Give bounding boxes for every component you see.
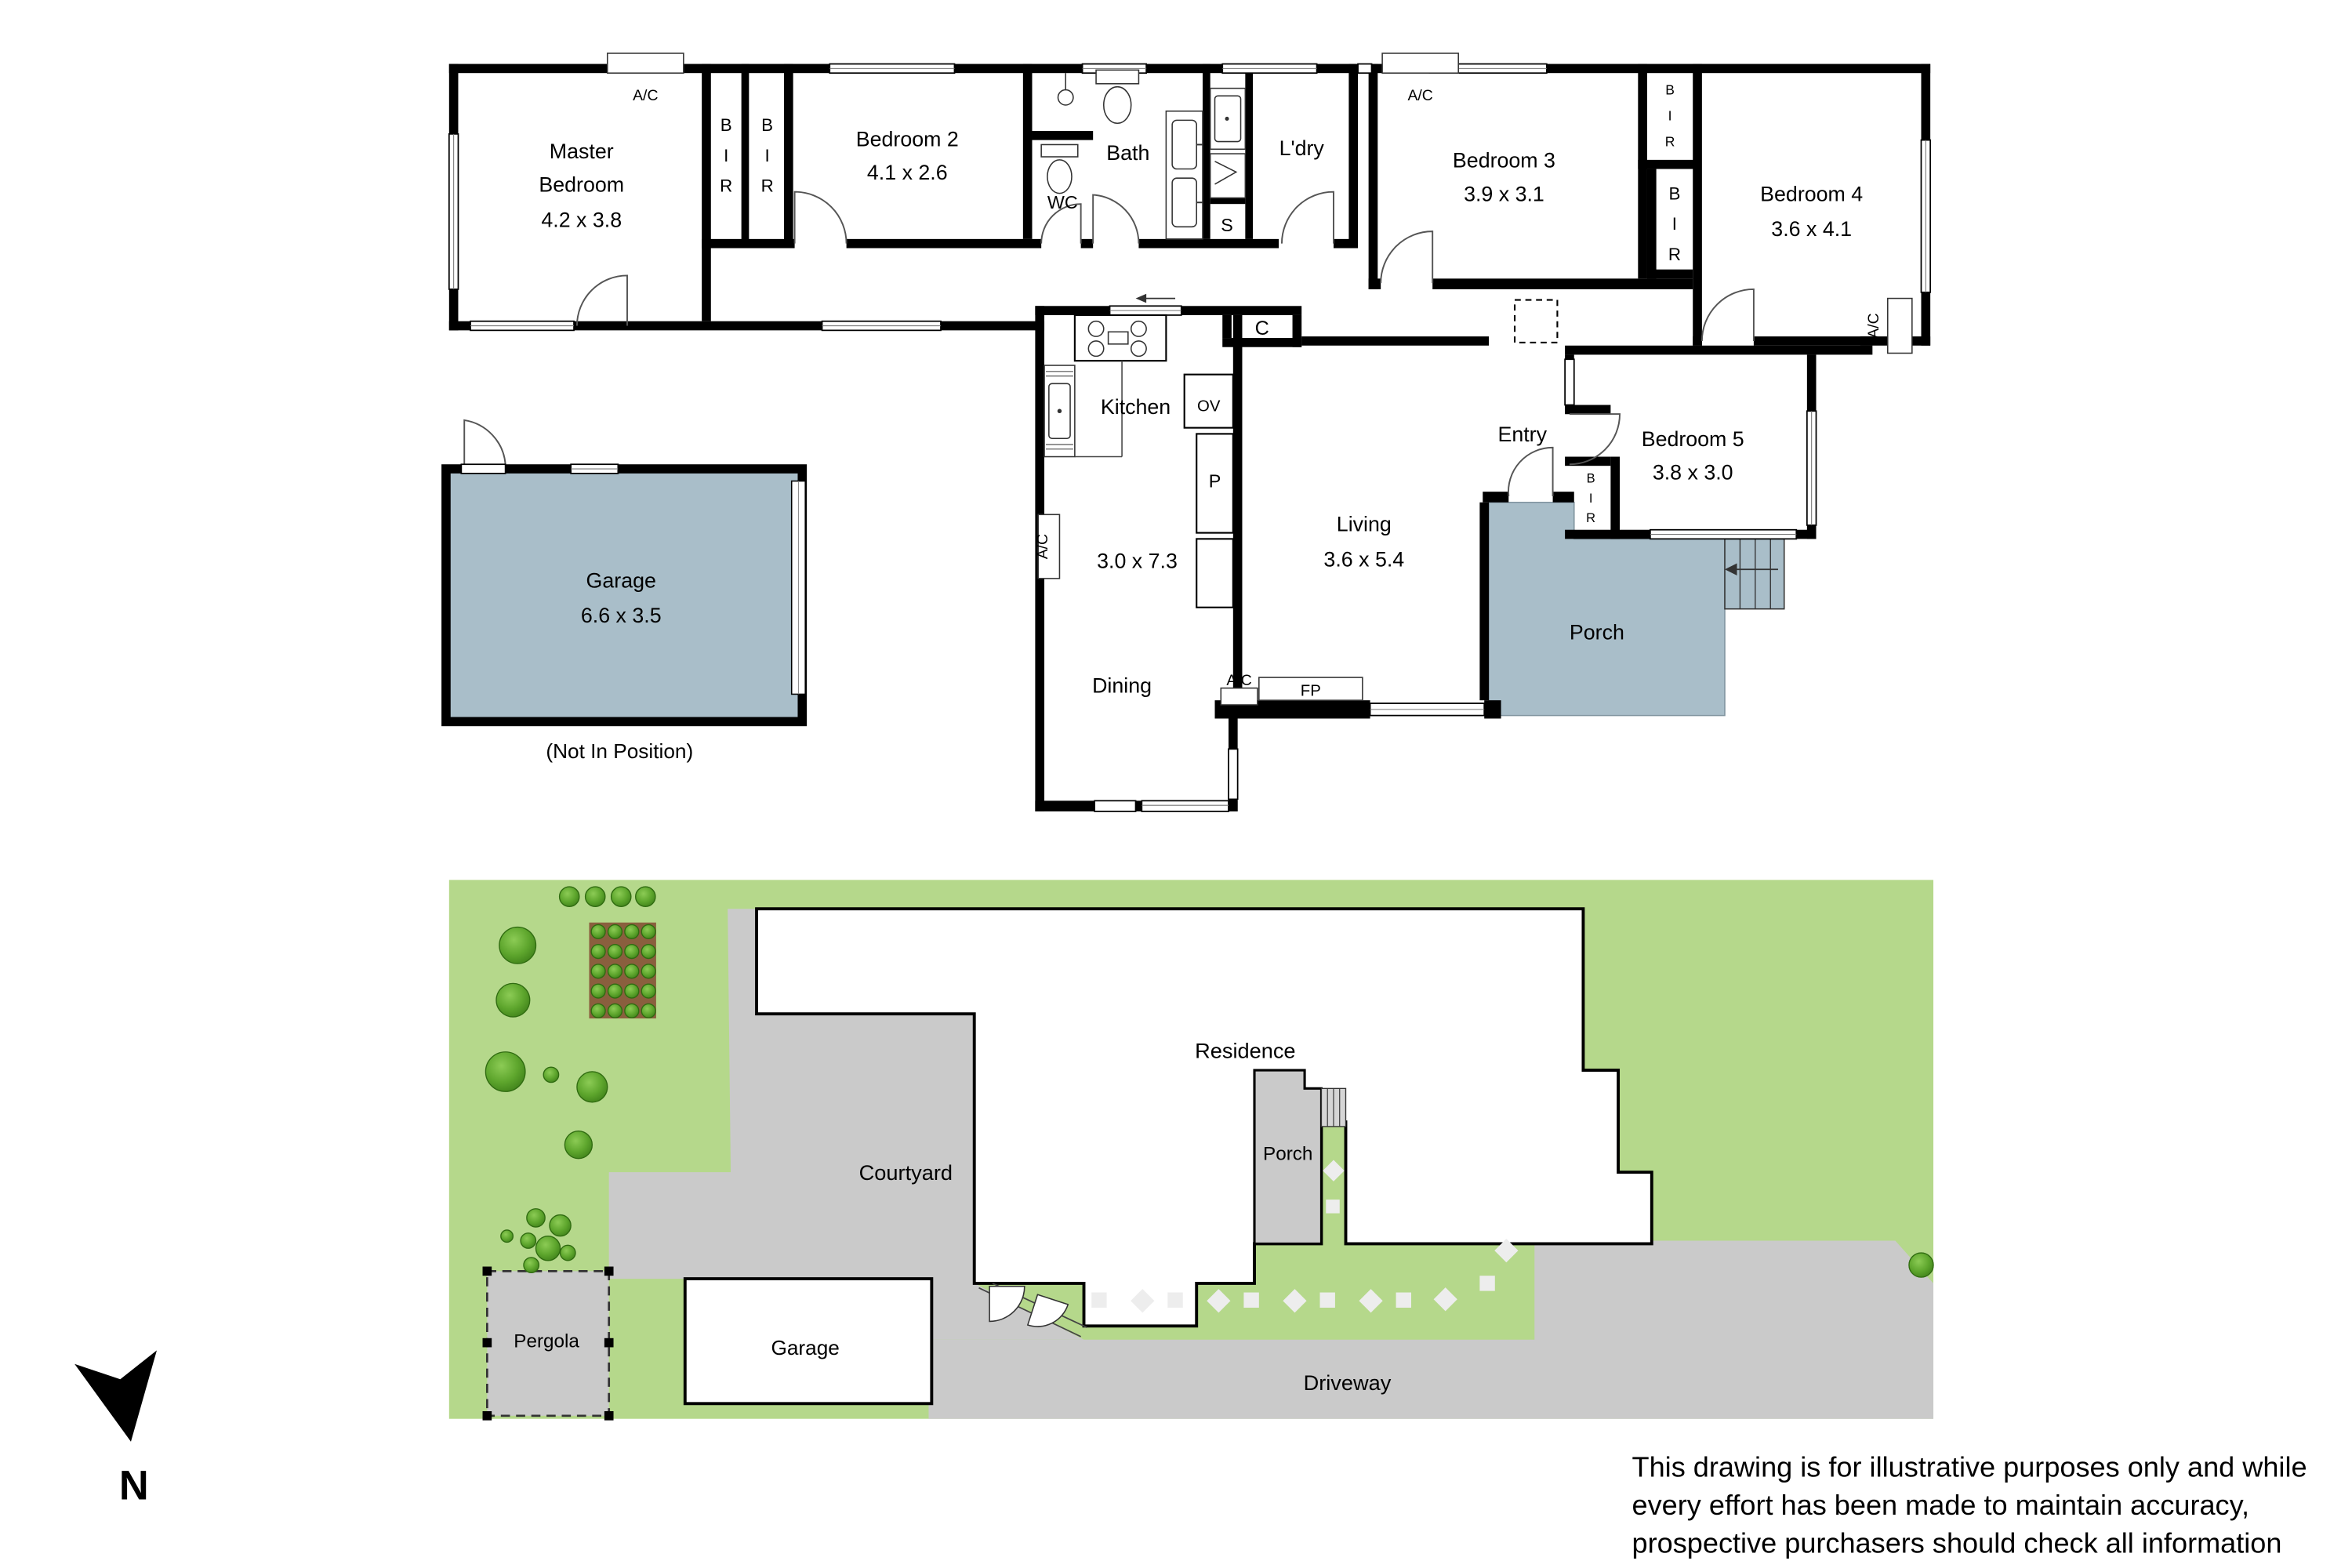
store-label: S — [1221, 215, 1233, 235]
floorplan-page: Master Bedroom 4.2 x 3.8 Bedroom 2 4.1 x… — [0, 0, 2352, 1568]
svg-text:R: R — [1668, 245, 1681, 264]
disclaimer: This drawing is for illustrative purpose… — [1632, 1450, 2307, 1559]
ac-unit-bed3 — [1382, 53, 1458, 73]
orchard — [589, 923, 655, 1018]
site-driveway-label: Driveway — [1304, 1370, 1392, 1395]
ac-label-dining: A/C — [1226, 672, 1251, 689]
svg-text:R: R — [1586, 511, 1595, 525]
basin-icon — [1058, 90, 1073, 105]
living-dim: 3.6 x 5.4 — [1323, 547, 1404, 571]
wc-name: WC — [1047, 192, 1078, 212]
fireplace-label: FP — [1301, 682, 1321, 699]
bedroom4-dim: 3.6 x 4.1 — [1771, 217, 1852, 241]
wc-cistern-icon — [1041, 144, 1078, 157]
living-name: Living — [1337, 513, 1392, 536]
site-residence-label: Residence — [1195, 1039, 1295, 1063]
master-dim: 4.2 x 3.8 — [541, 208, 622, 231]
garage-fp-dim: 6.6 x 3.5 — [581, 604, 662, 627]
stove-icon — [1075, 315, 1167, 361]
disclaimer-line-3: prospective purchasers should check all … — [1632, 1527, 2282, 1559]
disclaimer-line-2: every effort has been made to maintain a… — [1632, 1489, 2249, 1521]
kitchen-dim: 3.0 x 7.3 — [1097, 549, 1178, 572]
svg-text:I: I — [724, 146, 728, 165]
vanity-sink-2 — [1172, 178, 1196, 227]
porch-fp-name: Porch — [1570, 621, 1624, 644]
bedroom3-dim: 3.9 x 3.1 — [1464, 182, 1544, 205]
svg-text:B: B — [1665, 82, 1675, 97]
master-name-1: Master — [550, 140, 614, 163]
master-name-2: Bedroom — [539, 173, 624, 197]
porch-stairs — [1725, 539, 1784, 608]
site-courtyard-label: Courtyard — [859, 1160, 953, 1185]
svg-text:B: B — [1668, 183, 1680, 203]
site-porch-steps — [1321, 1088, 1345, 1127]
svg-text:R: R — [761, 176, 774, 196]
disclaimer-line-1: This drawing is for illustrative purpose… — [1632, 1450, 2307, 1483]
svg-text:I: I — [1668, 107, 1672, 123]
bath-name: Bath — [1106, 141, 1149, 165]
bedroom2-dim: 4.1 x 2.6 — [867, 161, 948, 184]
oven-label: OV — [1197, 397, 1221, 415]
svg-text:I: I — [1672, 214, 1677, 234]
svg-text:B: B — [1587, 472, 1595, 486]
bedroom3-name: Bedroom 3 — [1453, 149, 1555, 172]
svg-text:R: R — [1665, 133, 1675, 149]
site-porch-label: Porch — [1263, 1144, 1312, 1165]
svg-text:I: I — [765, 146, 770, 165]
bedroom5-name: Bedroom 5 — [1642, 427, 1744, 451]
ac-label-master: A/C — [633, 87, 658, 104]
garage-note: (Not In Position) — [546, 739, 693, 763]
laundry-name: L'dry — [1279, 136, 1325, 160]
north-label: N — [119, 1464, 149, 1509]
garage-floorplan — [441, 464, 807, 726]
laundry-tub-icon — [1210, 154, 1246, 198]
dining-name: Dining — [1092, 673, 1152, 697]
site-pergola-label: Pergola — [514, 1330, 579, 1352]
bath-toilet-icon — [1104, 87, 1131, 124]
bedroom5-dim: 3.8 x 3.0 — [1653, 461, 1733, 485]
bedroom2-name: Bedroom 2 — [856, 127, 959, 151]
cupboard-label: C — [1255, 318, 1269, 339]
garage-fp-name: Garage — [586, 569, 656, 593]
kitchen-sink-icon — [1044, 365, 1075, 457]
wc-toilet-icon — [1047, 160, 1072, 194]
pantry-label: P — [1209, 470, 1221, 491]
svg-text:B: B — [761, 115, 773, 135]
cabinet — [1196, 539, 1233, 607]
entry-name: Entry — [1497, 423, 1547, 446]
bedroom4-name: Bedroom 4 — [1760, 182, 1863, 205]
ac-unit-dining — [1221, 688, 1258, 705]
ac-label-bed4: A/C — [1865, 313, 1882, 338]
kitchen-name: Kitchen — [1101, 395, 1171, 419]
ac-unit-master — [608, 53, 684, 73]
floorplan-drawing: Master Bedroom 4.2 x 3.8 Bedroom 2 4.1 x… — [0, 0, 2352, 1568]
vanity-sink-1 — [1172, 120, 1196, 169]
svg-text:I: I — [1589, 492, 1593, 506]
ac-label-kitchen: A/C — [1034, 534, 1051, 559]
svg-text:R: R — [720, 176, 732, 196]
svg-text:B: B — [720, 115, 732, 135]
site-plan: Residence Courtyard Porch Garage Pergola… — [449, 880, 1933, 1420]
site-garage-label: Garage — [771, 1336, 839, 1359]
ac-label-bed3: A/C — [1407, 87, 1432, 104]
ac-unit-bed4 — [1888, 299, 1912, 354]
bath-cistern-icon — [1096, 70, 1138, 83]
